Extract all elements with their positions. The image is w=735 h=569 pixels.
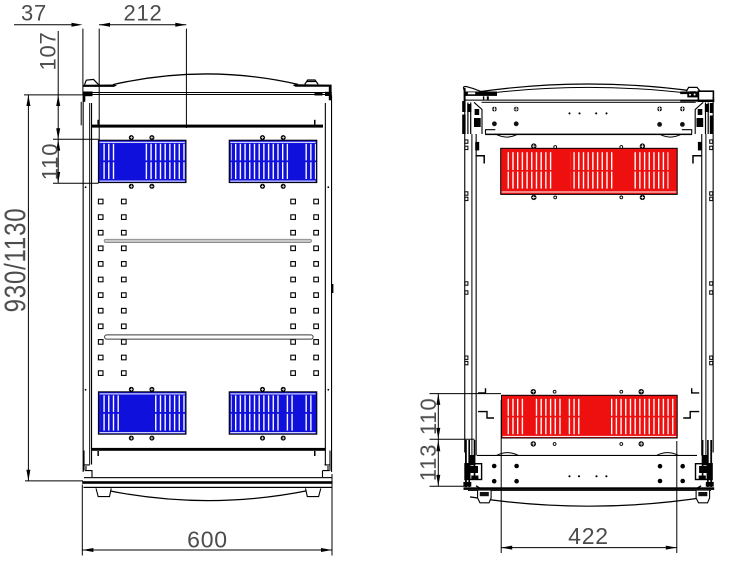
svg-text:600: 600 bbox=[187, 527, 228, 553]
svg-text:110: 110 bbox=[38, 143, 63, 180]
svg-text:930/1130: 930/1130 bbox=[0, 208, 32, 313]
svg-text:212: 212 bbox=[123, 1, 162, 26]
svg-text:107: 107 bbox=[36, 31, 61, 70]
svg-text:110: 110 bbox=[416, 398, 441, 435]
svg-text:422: 422 bbox=[568, 523, 609, 549]
svg-text:113: 113 bbox=[416, 444, 441, 481]
svg-text:37: 37 bbox=[21, 1, 47, 26]
